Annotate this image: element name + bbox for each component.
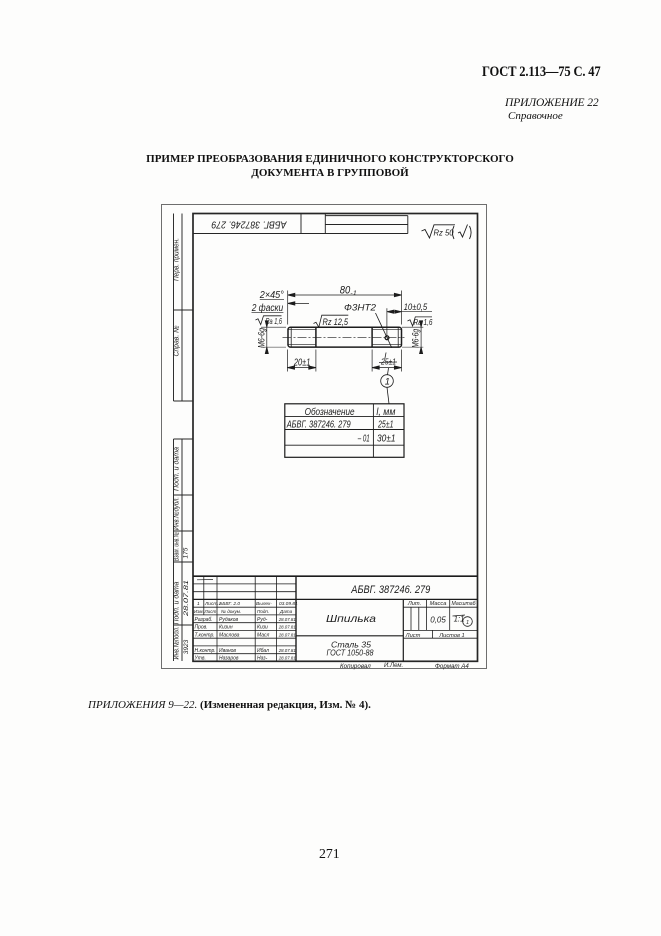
svg-text:Листов 1: Листов 1 [438, 633, 464, 639]
svg-text:Справ. №: Справ. № [174, 325, 181, 356]
svg-text:Шпилька: Шпилька [326, 613, 376, 625]
svg-text:Ra 1,6: Ra 1,6 [414, 318, 433, 327]
svg-text:03.09.81: 03.09.81 [279, 601, 298, 607]
svg-text:ГОСТ 1050-88: ГОСТ 1050-88 [327, 649, 374, 658]
svg-text:Назаров: Назаров [219, 656, 239, 662]
svg-text:20±1: 20±1 [293, 358, 310, 369]
svg-text:80: 80 [340, 284, 351, 296]
svg-text:– 01: – 01 [357, 434, 370, 445]
svg-text:Масл: Масл [257, 632, 270, 638]
svg-text:АБВГ. 387246. 279: АБВГ. 387246. 279 [211, 219, 287, 231]
svg-text:Н.контр.: Н.контр. [195, 648, 216, 654]
svg-text:Ф3НТ2: Ф3НТ2 [344, 302, 377, 313]
svg-text:Иванов: Иванов [219, 648, 236, 654]
svg-text:Т.контр.: Т.контр. [195, 632, 215, 638]
svg-text:Копировал: Копировал [340, 663, 371, 670]
svg-text:Взам. инв.№: Взам. инв.№ [174, 532, 181, 561]
svg-text:Кизи: Кизи [257, 625, 268, 631]
svg-text:Вылех-: Вылех- [256, 601, 272, 607]
svg-text:Маслова: Маслова [219, 632, 240, 638]
svg-text:Rz 50: Rz 50 [434, 228, 454, 238]
svg-text:Подп.: Подп. [257, 609, 269, 614]
svg-text:Наз-: Наз- [257, 656, 268, 662]
svg-text:1: 1 [197, 601, 200, 607]
svg-text:И.Лем.: И.Лем. [384, 663, 403, 669]
svg-text:Лит.: Лит. [407, 601, 421, 607]
svg-text:Рудаков: Рудаков [219, 617, 239, 623]
svg-text:175: 175 [183, 547, 190, 558]
svg-text:1: 1 [385, 375, 390, 386]
svg-text:Утв.: Утв. [195, 656, 206, 662]
svg-text:АБВГ. 2.0: АБВГ. 2.0 [218, 601, 240, 607]
svg-text:М6-6g: М6-6g [257, 328, 267, 348]
svg-text:28.07.81: 28.07.81 [278, 656, 297, 661]
svg-text:АБВГ. 387246. 279: АБВГ. 387246. 279 [350, 584, 430, 596]
svg-text:0,05: 0,05 [430, 616, 446, 625]
svg-text:Инв.№подл.: Инв.№подл. [173, 626, 181, 659]
svg-text:Масса: Масса [430, 601, 447, 607]
svg-text:Лист: Лист [405, 633, 421, 639]
svg-text:АБВГ. 387246. 279: АБВГ. 387246. 279 [286, 420, 351, 431]
svg-text:Перв. примен.: Перв. примен. [174, 238, 181, 281]
svg-text:Пров.: Пров. [195, 625, 208, 631]
svg-text:28.07.81: 28.07.81 [278, 648, 297, 653]
svg-text:28.07.81: 28.07.81 [278, 617, 297, 622]
svg-text:Подп. и дата: Подп. и дата [173, 581, 181, 624]
svg-text:10±0,5: 10±0,5 [404, 302, 428, 313]
svg-text:l, мм: l, мм [376, 407, 395, 418]
svg-text:Обозначение: Обозначение [305, 406, 355, 418]
svg-text:25±1: 25±1 [377, 420, 393, 431]
svg-text:Масштаб: Масштаб [452, 601, 477, 607]
svg-text:28.07.81: 28.07.81 [278, 632, 297, 637]
svg-text:28.07.81: 28.07.81 [184, 580, 190, 618]
svg-text:Изм.: Изм. [194, 609, 204, 614]
svg-text:Лист: Лист [204, 609, 217, 614]
svg-text:28.07.81: 28.07.81 [278, 625, 297, 630]
svg-text:М6-6g: М6-6g [410, 329, 420, 348]
svg-text:Формат А4: Формат А4 [435, 663, 469, 670]
svg-text:Подп. и дата: Подп. и дата [173, 447, 181, 491]
svg-text:Руд-: Руд- [257, 617, 268, 623]
svg-text:Инв.№дубл.: Инв.№дубл. [173, 497, 181, 530]
svg-text:30±1: 30±1 [377, 434, 396, 445]
svg-text:1: 1 [466, 620, 469, 626]
svg-text:Дата: Дата [279, 609, 293, 614]
svg-text:Кизин: Кизин [219, 625, 233, 631]
svg-text:№ докум.: № докум. [221, 609, 241, 614]
svg-text:Разраб.: Разраб. [195, 617, 213, 623]
svg-text:Ибал: Ибал [257, 648, 269, 654]
svg-text:3923: 3923 [183, 639, 190, 654]
svg-text:Rz 12,5: Rz 12,5 [323, 317, 349, 327]
svg-text:-1: -1 [350, 290, 357, 297]
